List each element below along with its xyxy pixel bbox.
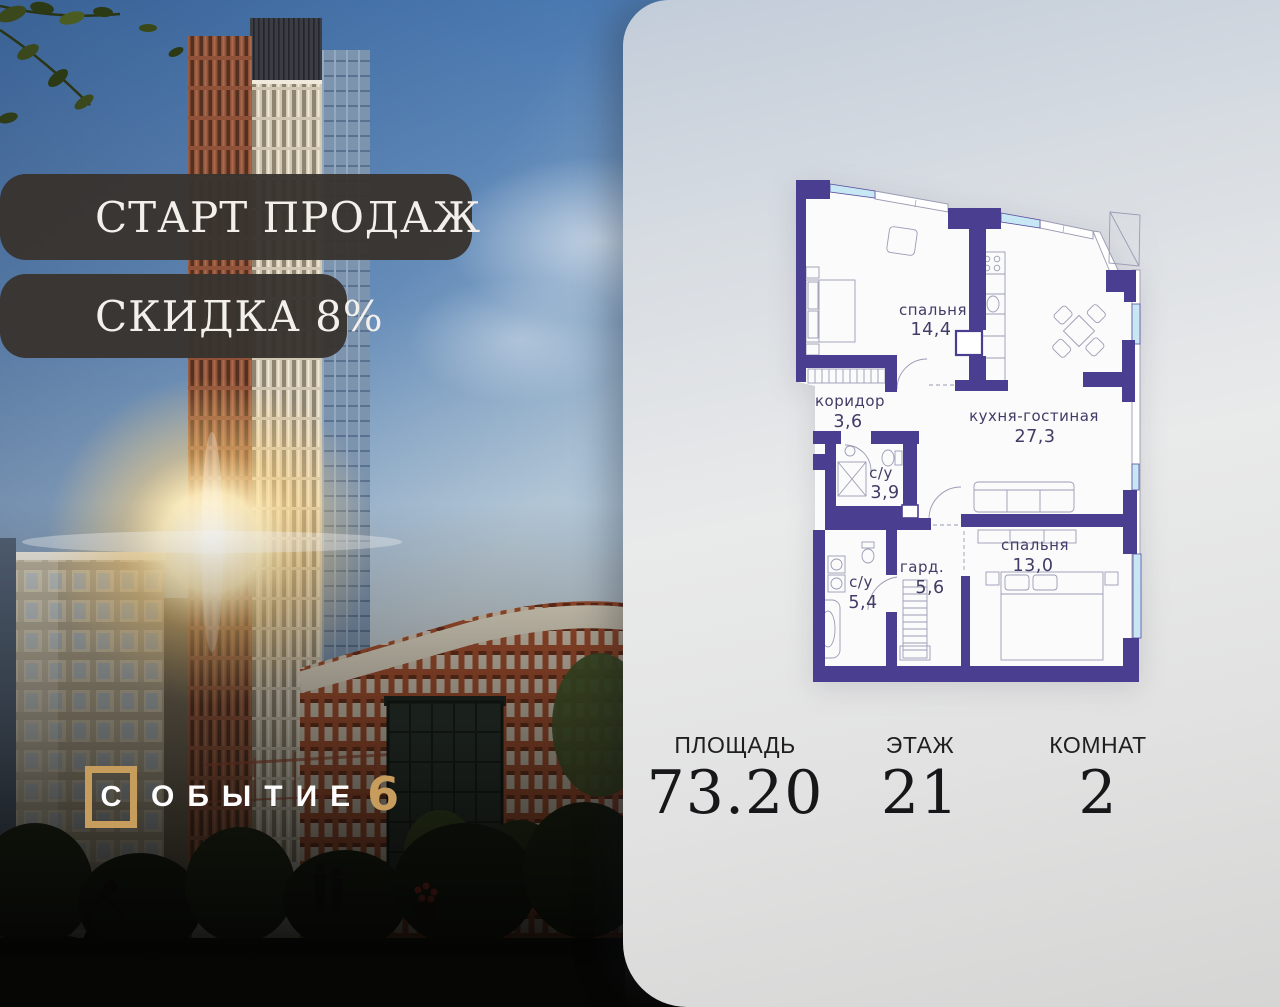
stat-rooms: КОМНАТ 2: [1049, 734, 1146, 823]
promo-banner-discount-text: СКИДКА 8%: [95, 292, 384, 341]
real-estate-flyer: СТАРТ ПРОДАЖ СКИДКА 8% С ОБЫТИЕ 6: [0, 0, 1280, 1007]
room-area: 27,3: [1015, 427, 1056, 447]
promo-banner-sales-start: СТАРТ ПРОДАЖ: [0, 174, 472, 260]
stat-rooms-label: КОМНАТ: [1049, 734, 1146, 757]
stat-floor-label: ЭТАЖ: [881, 734, 959, 757]
room-name: спальня: [1001, 536, 1069, 554]
room-area: 5,6: [915, 578, 944, 598]
floor-plan: спальня 14,4 коридор 3,6 кухня-гостиная …: [788, 168, 1152, 688]
logo: С ОБЫТИЕ 6: [85, 766, 399, 828]
room-area: 5,4: [848, 593, 877, 613]
logo-wordmark: ОБЫТИЕ: [151, 780, 363, 814]
stat-rooms-value: 2: [1049, 763, 1146, 823]
room-name: кухня-гостиная: [969, 407, 1099, 425]
info-panel: спальня 14,4 коридор 3,6 кухня-гостиная …: [623, 0, 1280, 1007]
apartment-stats: ПЛОЩАДЬ 73.20 ЭТАЖ 21 КОМНАТ 2: [623, 734, 1280, 844]
stat-area-label: ПЛОЩАДЬ: [647, 734, 824, 757]
promo-banner-discount: СКИДКА 8%: [0, 274, 347, 358]
room-name: коридор: [815, 392, 885, 410]
stat-area-value: 73.20: [647, 763, 824, 823]
room-name: спальня: [899, 301, 967, 319]
stat-floor: ЭТАЖ 21: [881, 734, 959, 823]
room-area: 3,6: [833, 412, 862, 432]
room-area: 3,9: [870, 483, 899, 503]
logo-number: 6: [367, 767, 399, 821]
room-name: гард.: [900, 558, 944, 576]
stat-floor-value: 21: [881, 763, 959, 823]
room-name: с/у: [869, 464, 893, 482]
promo-banner-sales-start-text: СТАРТ ПРОДАЖ: [95, 193, 481, 242]
stat-area: ПЛОЩАДЬ 73.20: [647, 734, 824, 823]
room-name: с/у: [849, 573, 873, 591]
room-area: 14,4: [911, 320, 952, 340]
logo-letter-box: С: [85, 766, 137, 828]
logo-boxed-letter: С: [101, 781, 122, 814]
room-area: 13,0: [1013, 556, 1054, 576]
